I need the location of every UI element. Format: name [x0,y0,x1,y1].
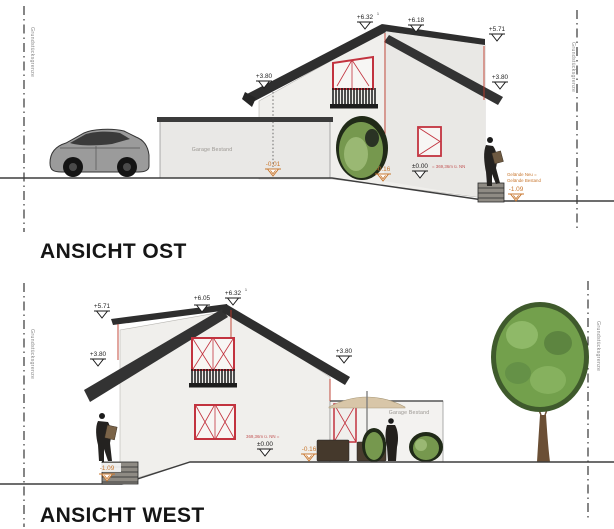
level-lower-ground: -1.09 [100,465,115,472]
elevation-marker [94,311,110,318]
balcony-railing-bars [192,369,234,384]
ground-line [0,462,614,484]
garage-roof-edge [157,117,333,122]
drawing-canvas: Grundstücksgrenze Grundstücksgrenze Gara… [0,0,614,529]
level-terrace: -0.16 [376,166,391,173]
level-zero-suffix: = 369,36m ü. NN [432,164,465,169]
elevation-marker [492,82,508,89]
boundary-label-right: Grundstücksgrenze [595,321,601,371]
level-ridge: +6.32 [357,14,374,21]
gelaende-note-1: Gelände Neu = [507,172,537,177]
window-lower [418,127,441,156]
garage-label: Garage Bestand [389,410,430,416]
level-ridge-sup: 1 [245,288,247,292]
bush [409,432,443,462]
level-ridge: +6.32 [225,290,242,297]
view-title-ost: ANSICHT OST [40,240,187,263]
garage-label: Garage Bestand [192,147,233,153]
level-terrace: -0.16 [302,446,317,453]
boundary-label-right: Grundstücksgrenze [570,42,576,92]
level-ridge-back: +6.18 [408,17,425,24]
level-zero: ±0.00 [412,163,428,170]
level-eave-right: +3.80 [336,348,353,355]
person [96,413,117,461]
level-lower-ground: -1.09 [509,186,524,193]
bush [362,428,386,462]
balcony-railing-base [189,383,237,388]
ansicht-west-view: Grundstücksgrenze Grundstücksgrenze Gara… [0,265,614,529]
tree [491,302,589,462]
level-ridge-front: +6.05 [194,295,211,302]
elevation-marker [90,359,106,366]
level-garage-ground: -0.01 [266,161,281,168]
car [50,129,149,177]
elevation-marker-orange [508,194,524,201]
house-wall-shaded [384,31,485,198]
boundary-label-left: Grundstücksgrenze [29,329,35,379]
level-eave-right: +3.80 [492,74,509,81]
level-zero: ±0.00 [257,441,273,448]
elevation-marker [225,298,241,305]
view-title-west: ANSICHT WEST [40,504,205,527]
elevation-marker [489,34,505,41]
balcony-railing-bars [333,88,375,105]
level-zero-prefix: 369,36m ü. NN = [246,434,280,439]
garage-body [160,121,330,178]
gelaende-note-2: Gelände Bestand [507,178,541,183]
boundary-label-left: Grundstücksgrenze [29,27,35,77]
level-eave-left: +3.80 [90,351,107,358]
house-wall [120,311,330,483]
elevation-marker [336,356,352,363]
level-eave-left: +3.80 [256,73,273,80]
ansicht-ost-view: Grundstücksgrenze Grundstücksgrenze Gara… [0,0,614,265]
person [484,137,503,186]
level-ridge-sup: 1 [377,12,379,16]
balcony-railing-base [330,104,378,109]
level-right-top: +5.71 [489,26,506,33]
level-left-top: +5.71 [94,303,111,310]
elevation-marker [357,22,373,29]
